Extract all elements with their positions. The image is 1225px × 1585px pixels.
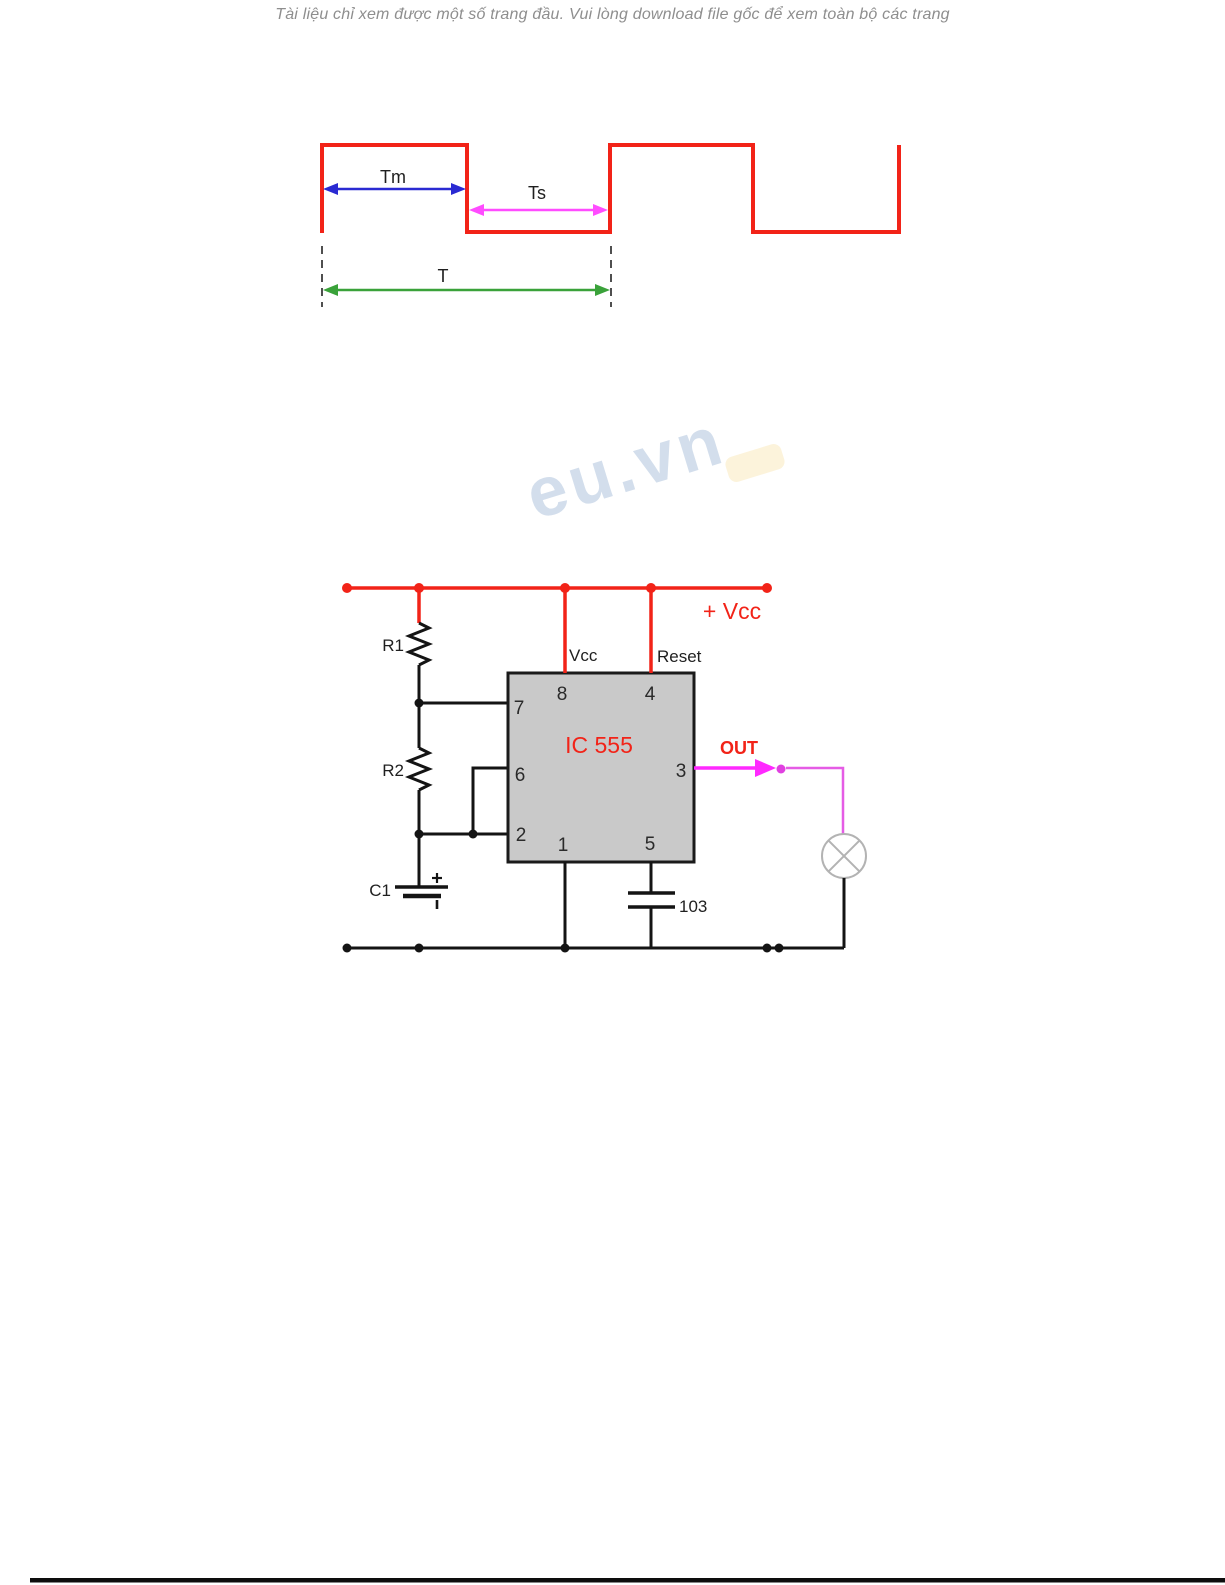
ic555-body: [508, 673, 694, 862]
ts-label: Ts: [528, 183, 546, 203]
ts-arrow: [469, 204, 608, 216]
resistor-r1-symbol: [409, 623, 429, 665]
document-page: eu.vn Tm Ts: [0, 0, 1225, 1585]
schematic-canvas: Tm Ts T: [0, 0, 1225, 1585]
out-label: OUT: [720, 738, 758, 758]
c1-label: C1: [369, 881, 391, 900]
ic555-circuit: + Vcc R1 R2 IC 555 Vcc R: [342, 583, 866, 953]
pin-number-8: 8: [557, 684, 568, 705]
pin-number-2: 2: [516, 825, 527, 846]
pin-number-1: 1: [558, 835, 569, 856]
resistor-r2-symbol: [409, 748, 429, 790]
lamp-icon: [822, 834, 866, 878]
r2-label: R2: [382, 761, 404, 780]
capacitor-c1-symbol: [395, 873, 448, 909]
t-label: T: [438, 266, 449, 286]
bypass-cap-label: 103: [679, 897, 707, 916]
pin-number-7: 7: [514, 698, 525, 719]
pin-number-5: 5: [645, 834, 656, 855]
tm-label: Tm: [380, 167, 406, 187]
vcc-pin-label: Vcc: [569, 646, 598, 665]
pin-number-4: 4: [645, 684, 656, 705]
out-arrow: [694, 759, 843, 834]
t-arrow: [323, 284, 610, 296]
supply-label: + Vcc: [703, 598, 761, 624]
header-notice: Tài liệu chỉ xem được một số trang đầu. …: [0, 6, 1225, 24]
ic555-label: IC 555: [565, 732, 633, 758]
capacitor-103-symbol: [628, 893, 675, 907]
r1-label: R1: [382, 636, 404, 655]
pin-number-3: 3: [676, 761, 687, 782]
reset-pin-label: Reset: [657, 647, 702, 666]
pin6-wire: [473, 768, 508, 834]
page-bottom-rule: [30, 1578, 1225, 1583]
timing-diagram: Tm Ts T: [322, 145, 899, 307]
pin-number-6: 6: [515, 765, 526, 786]
